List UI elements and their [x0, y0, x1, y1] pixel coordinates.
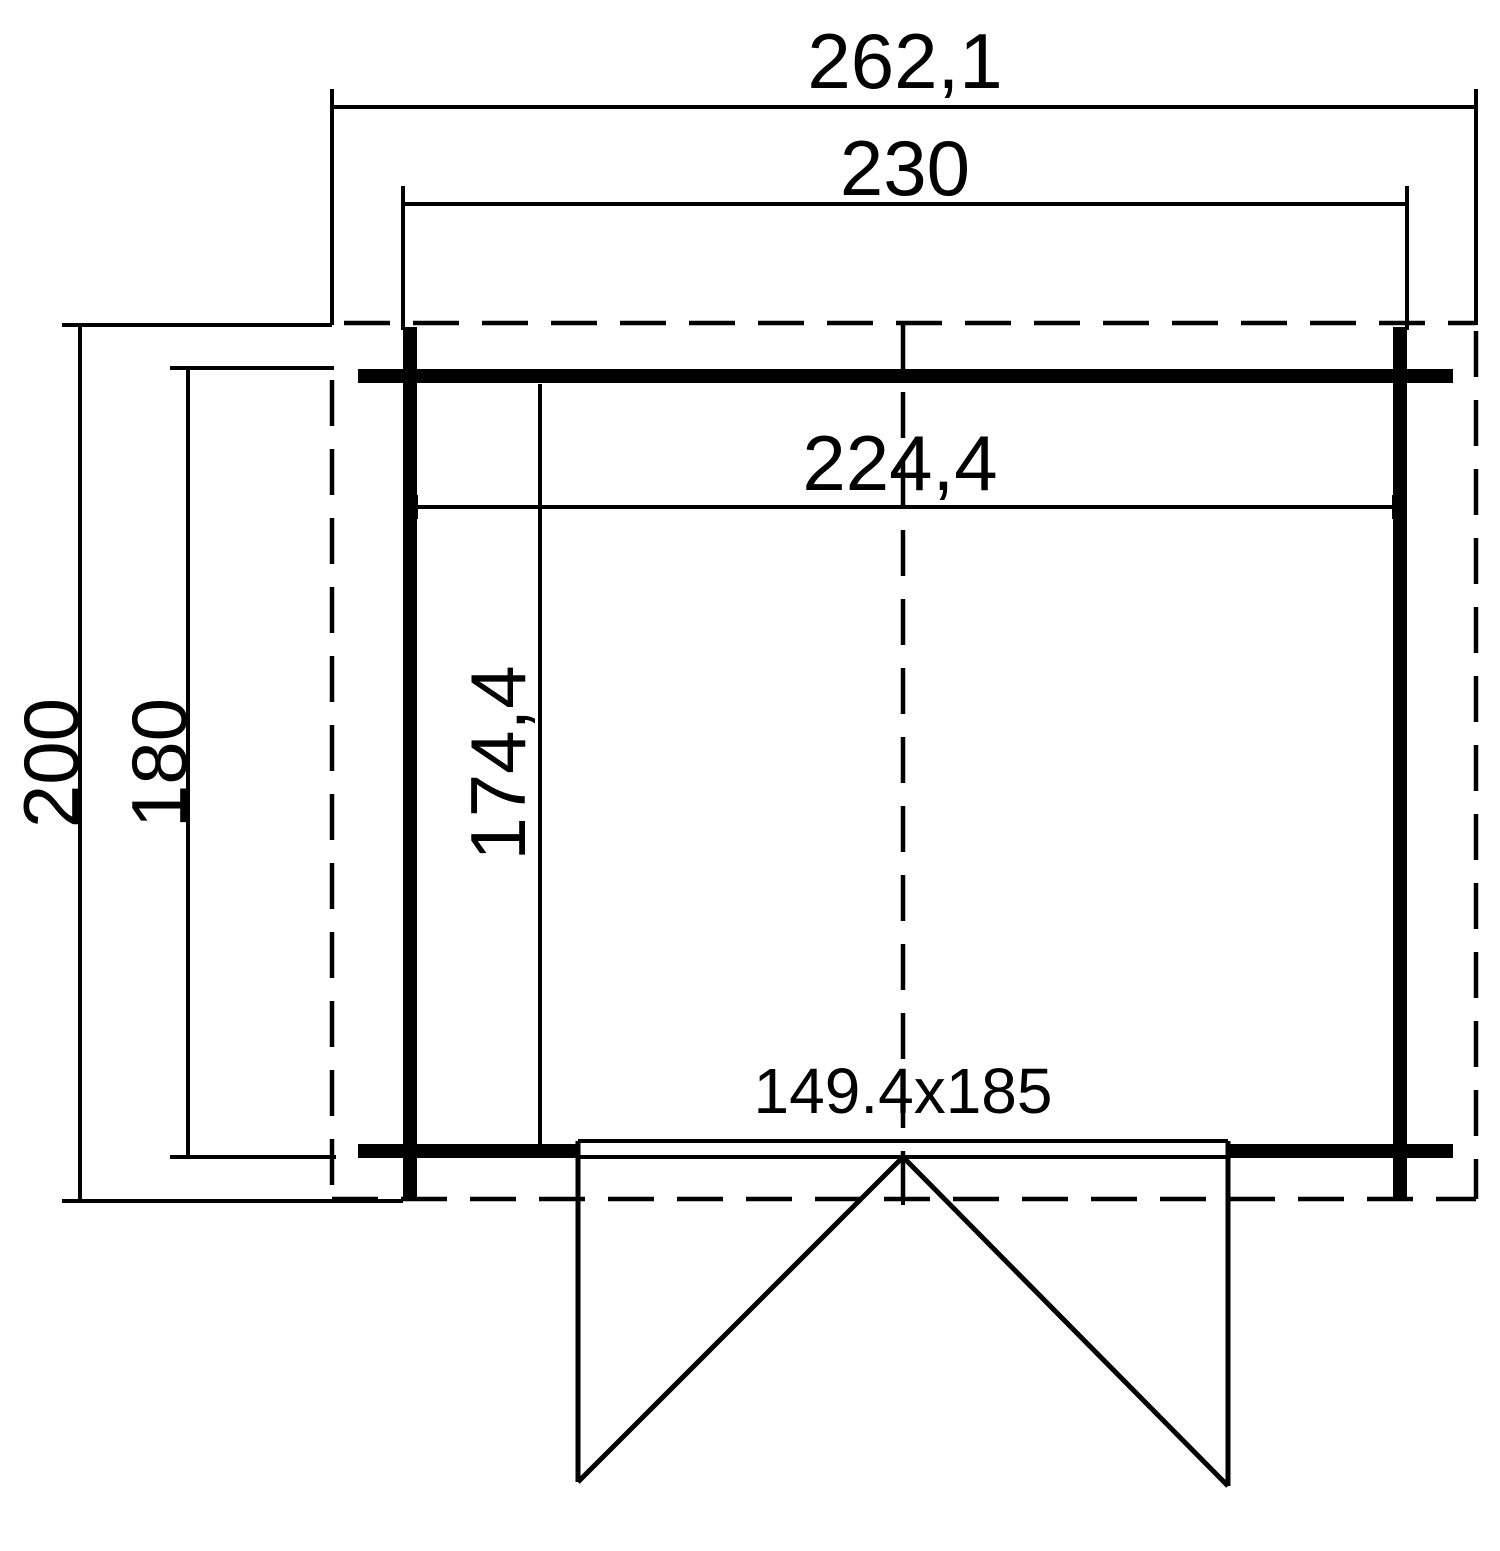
label-group: 262,1 230 224,4 200 180 174,4 149.4x185	[7, 17, 1052, 1127]
door-swing-right	[903, 1157, 1228, 1486]
dim-label-inner-depth: 174,4	[454, 665, 542, 860]
dim-label-inner-width: 224,4	[802, 419, 997, 507]
dim-label-door-size: 149.4x185	[754, 1055, 1053, 1127]
dim-label-wall-depth: 180	[115, 698, 203, 828]
linework-group	[62, 89, 1476, 1486]
floor-plan-svg: 262,1 230 224,4 200 180 174,4 149.4x185	[0, 0, 1500, 1551]
dim-label-overall-depth: 200	[7, 698, 95, 828]
floor-plan-canvas: 262,1 230 224,4 200 180 174,4 149.4x185	[0, 0, 1500, 1551]
dim-label-wall-width: 230	[840, 124, 970, 212]
door-swing-left	[578, 1157, 903, 1482]
dim-label-overall-width: 262,1	[807, 17, 1002, 105]
